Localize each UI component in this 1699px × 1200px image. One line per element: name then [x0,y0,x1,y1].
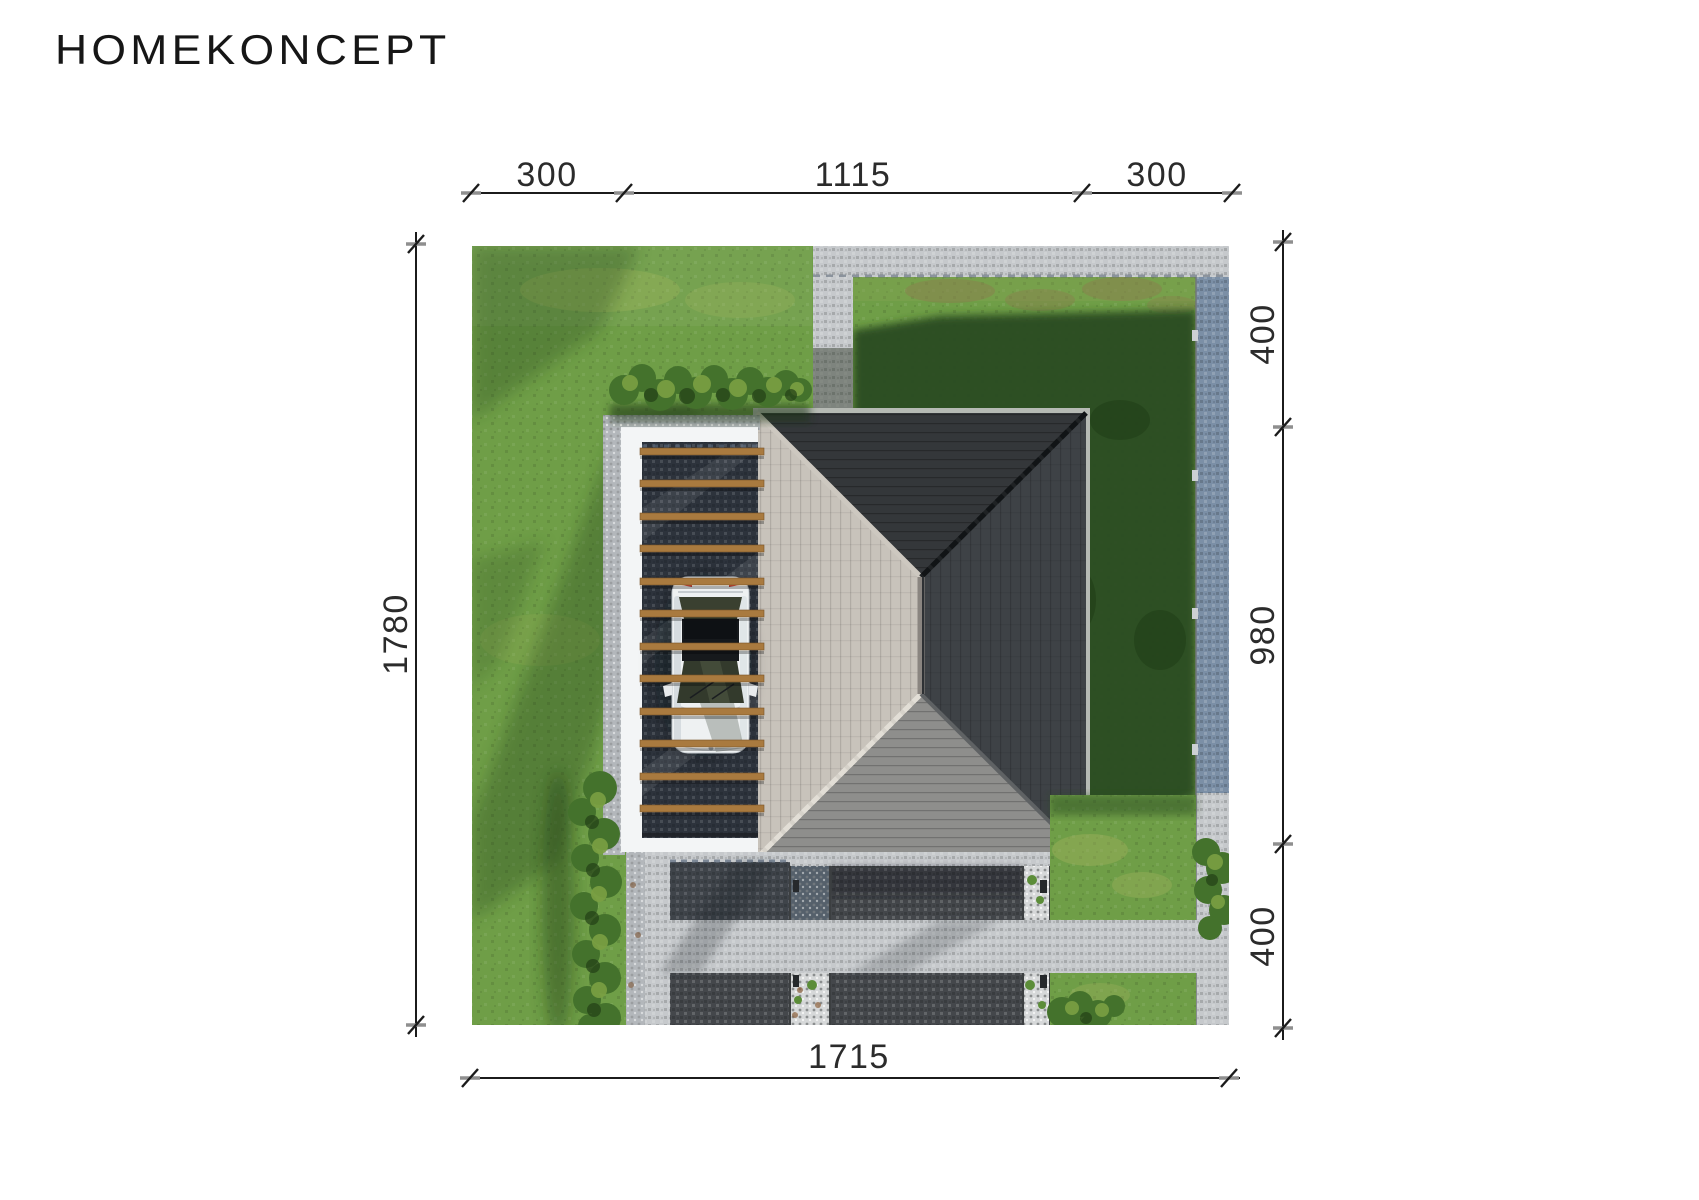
car [654,572,758,758]
dimension-label: 980 [1244,604,1282,665]
dimension-bottom: 1715 [460,1038,1240,1087]
dimension-label: 300 [1126,156,1187,194]
dimension-label: 1715 [808,1038,890,1076]
dimension-label: 400 [1244,303,1282,364]
dimension-right: 400 980 400 [1244,230,1293,1040]
lawn-bottom-right [1050,795,1196,1025]
carport [621,427,766,852]
dimension-top: 300 1115 300 [461,156,1242,202]
aerial-render [472,246,1239,1040]
dimension-label: 400 [1244,905,1282,966]
dimension-label: 1780 [377,593,415,675]
connector-path [813,277,853,408]
site-plan-figure: 300 1115 300 1780 400 980 400 1715 [0,0,1699,1200]
dimension-label: 300 [516,156,577,194]
dimension-left: 1780 [377,232,426,1037]
top-path [813,246,1229,277]
dimension-label: 1115 [815,156,892,194]
house-roof [753,408,1090,863]
page: HOMEKONCEPT [0,0,1699,1200]
